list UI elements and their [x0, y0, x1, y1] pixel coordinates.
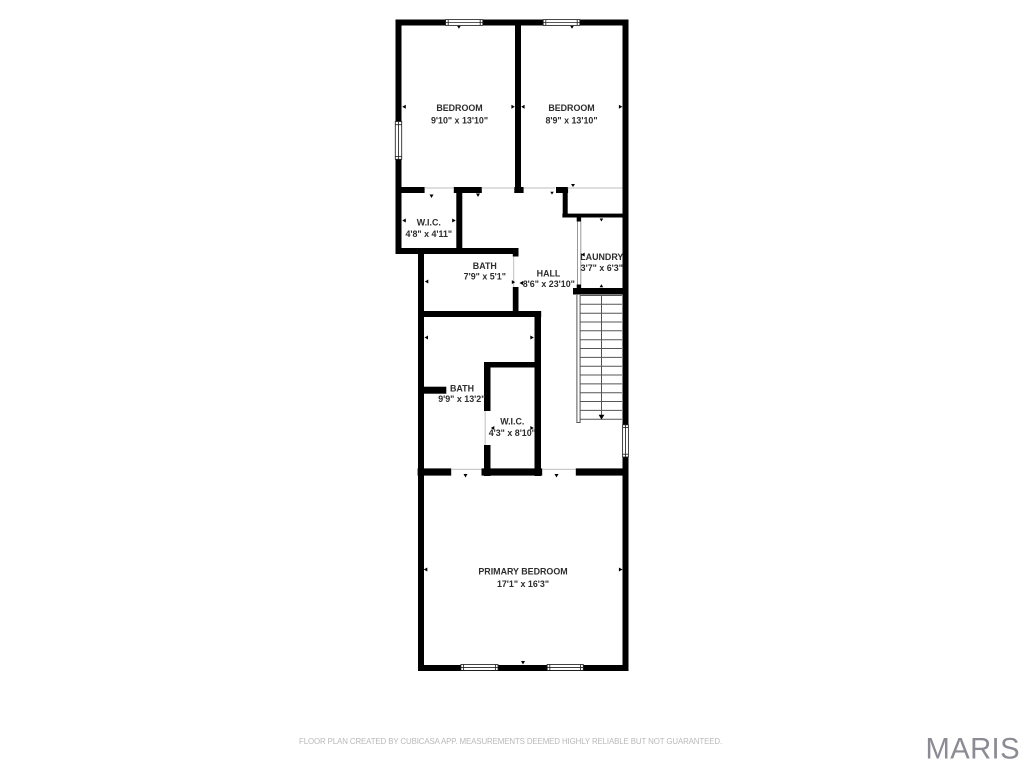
svg-text:8'6" x 23'10": 8'6" x 23'10": [523, 279, 575, 289]
svg-text:8'9" x 13'10": 8'9" x 13'10": [545, 116, 597, 126]
svg-text:17'1" x 16'3": 17'1" x 16'3": [497, 579, 549, 589]
svg-text:MARIS: MARIS: [926, 734, 1020, 766]
svg-text:PRIMARY BEDROOM: PRIMARY BEDROOM: [478, 567, 567, 577]
svg-text:9'10" x 13'10": 9'10" x 13'10": [431, 116, 488, 126]
svg-text:4'8" x 4'11": 4'8" x 4'11": [405, 229, 452, 239]
svg-text:FLOOR PLAN CREATED BY CUBICASA: FLOOR PLAN CREATED BY CUBICASA APP. MEAS…: [299, 737, 722, 746]
svg-text:7'9" x 5'1": 7'9" x 5'1": [464, 272, 506, 282]
svg-text:LAUNDRY: LAUNDRY: [580, 252, 623, 262]
svg-text:BEDROOM: BEDROOM: [436, 103, 482, 113]
svg-text:W.I.C.: W.I.C.: [500, 417, 524, 427]
svg-text:HALL: HALL: [537, 269, 561, 279]
svg-text:4'3" x 8'10": 4'3" x 8'10": [489, 428, 536, 438]
svg-text:BATH: BATH: [450, 384, 474, 394]
svg-text:BEDROOM: BEDROOM: [548, 103, 594, 113]
svg-text:BATH: BATH: [473, 261, 497, 271]
svg-text:W.I.C.: W.I.C.: [417, 218, 441, 228]
svg-text:9'9" x 13'2": 9'9" x 13'2": [438, 394, 485, 404]
svg-text:3'7" x 6'3": 3'7" x 6'3": [581, 263, 623, 273]
